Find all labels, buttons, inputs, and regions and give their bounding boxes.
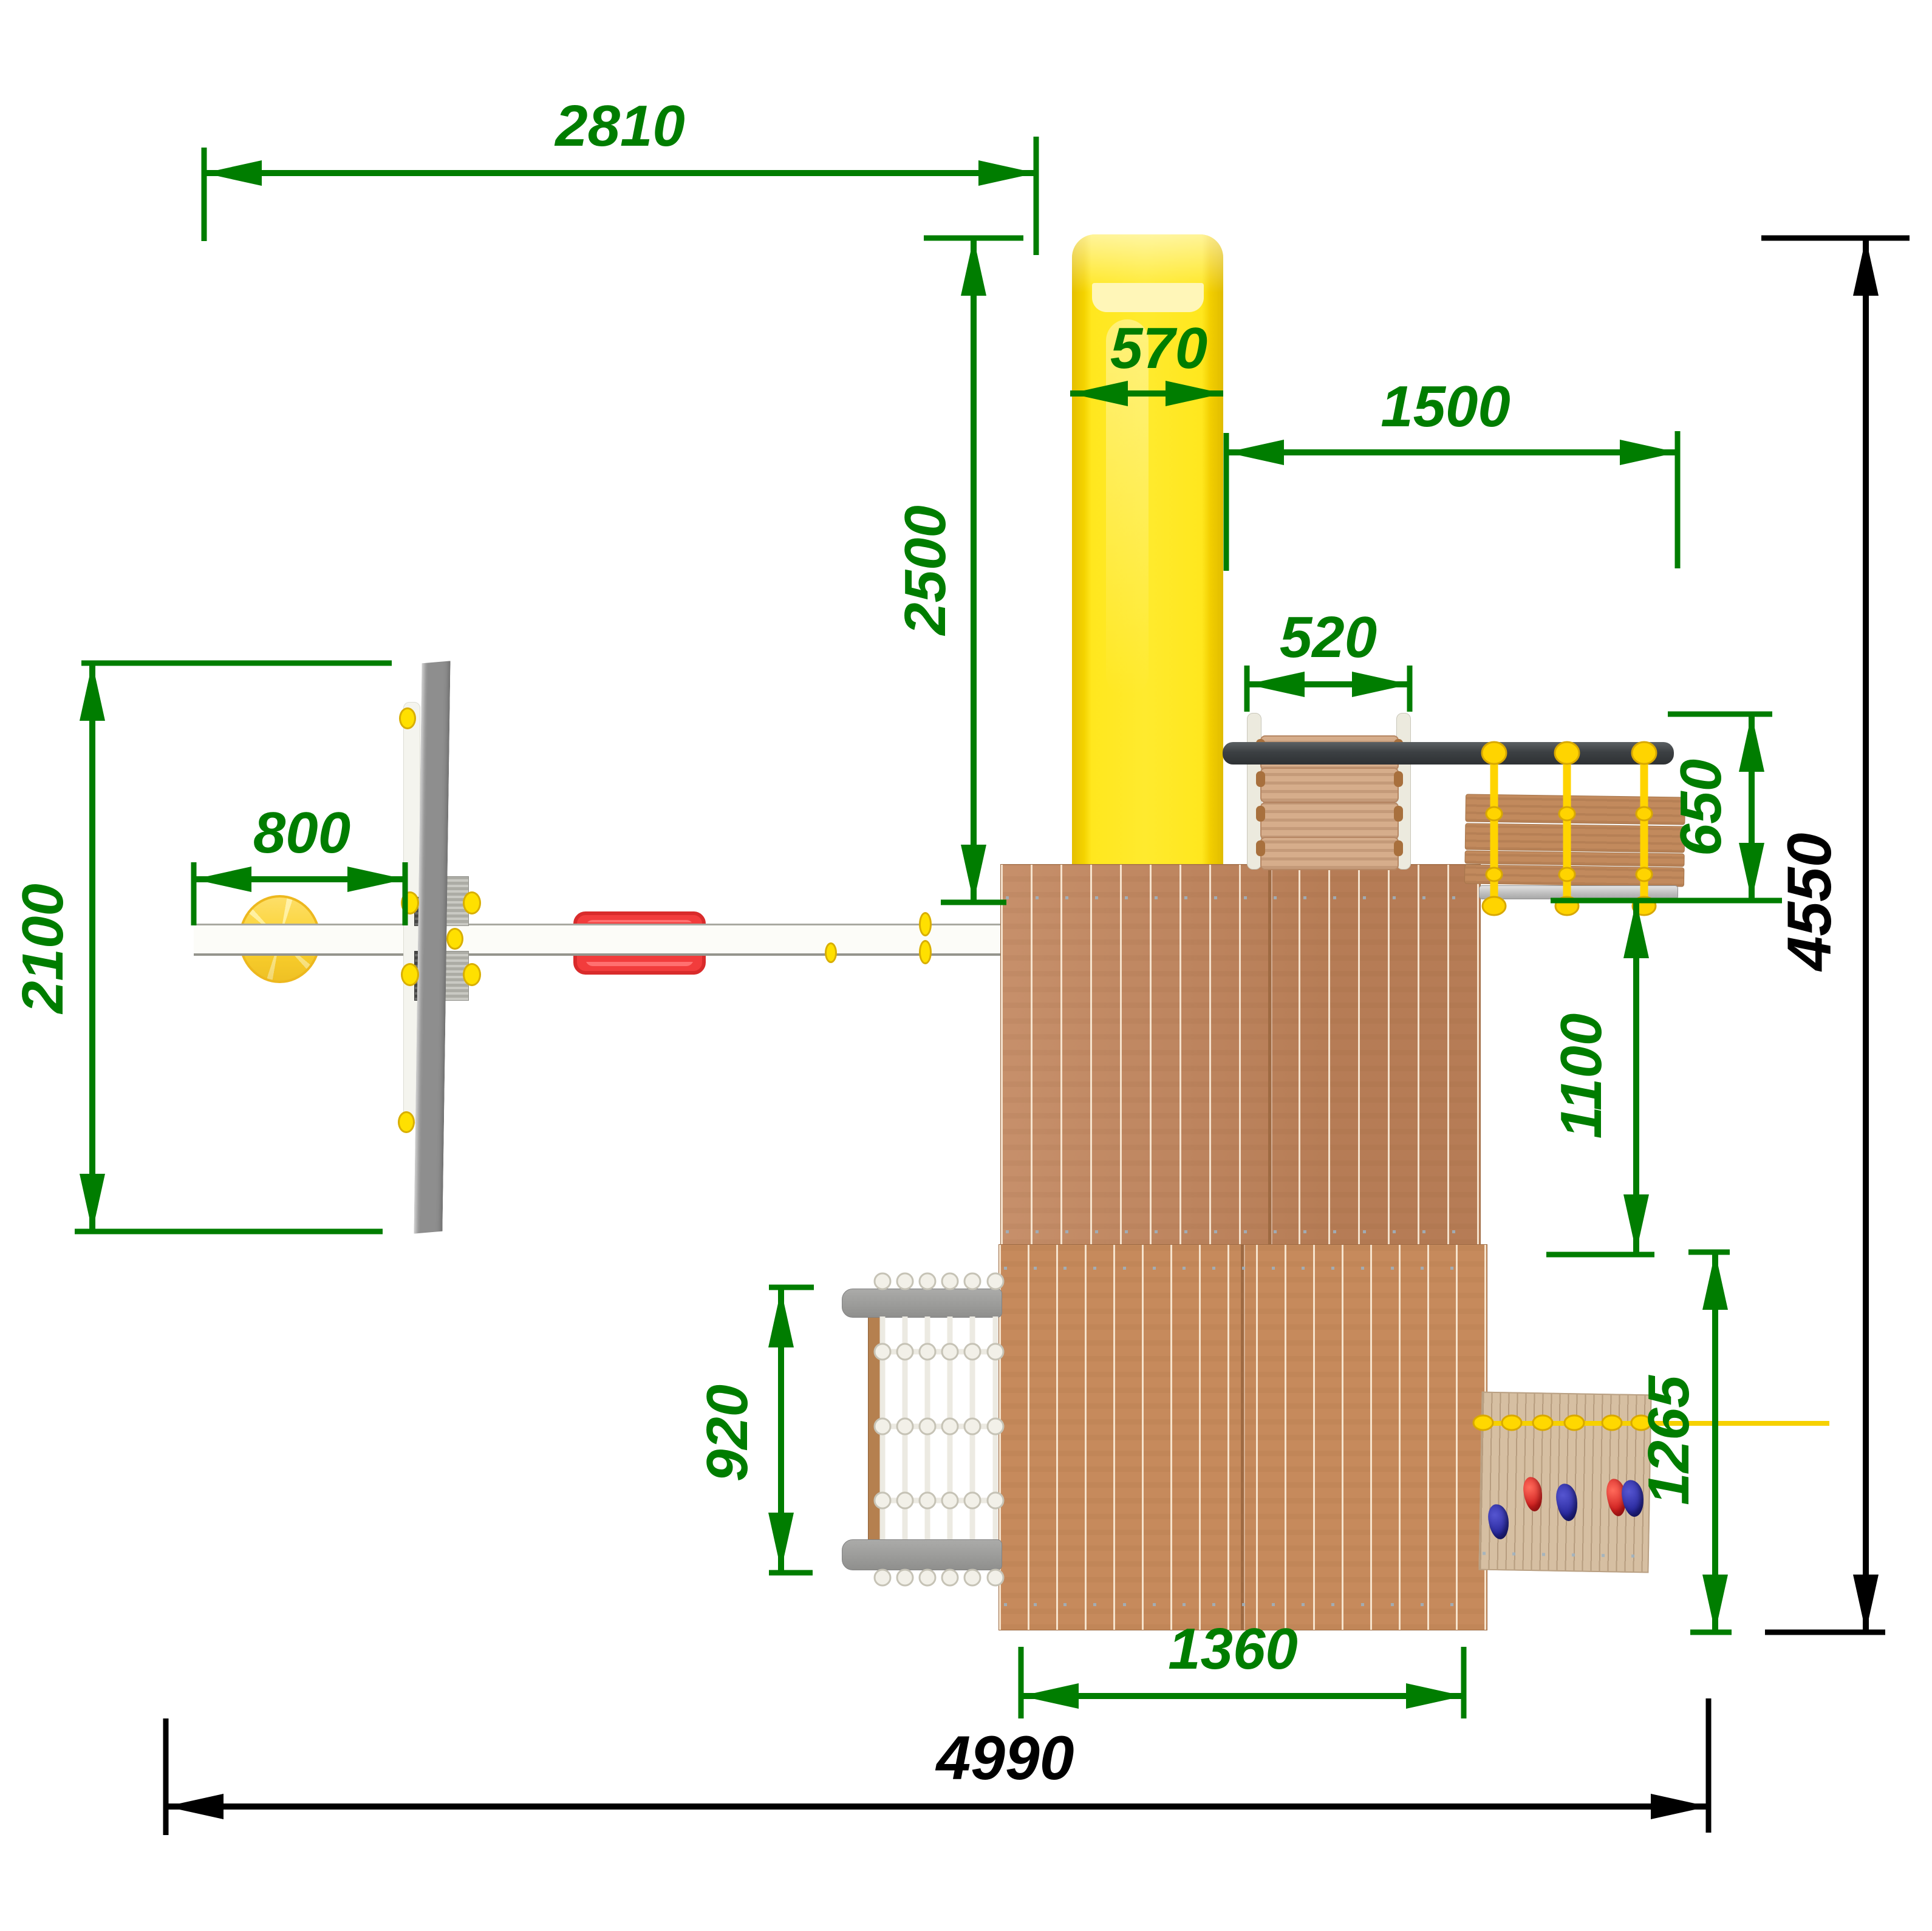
dim-label-2100: 2100 [10, 884, 75, 1015]
dim-label-920: 920 [695, 1384, 760, 1482]
dim-label-520: 520 [1280, 605, 1377, 670]
dimension-650 [1551, 714, 1782, 901]
dimension-2100 [75, 663, 392, 1231]
dimension-520 [1247, 666, 1410, 712]
bridge-ropes [1482, 742, 1656, 915]
dimension-570 [1070, 381, 1223, 406]
dim-label-4990: 4990 [935, 1723, 1074, 1793]
dim-label-650: 650 [1668, 759, 1733, 856]
dim-label-2810: 2810 [554, 94, 685, 158]
dim-label-2500: 2500 [893, 505, 958, 636]
dim-label-1265: 1265 [1636, 1375, 1701, 1505]
dim-label-4550: 4550 [1775, 833, 1844, 972]
dimension-920 [768, 1287, 814, 1573]
dim-label-800: 800 [253, 800, 350, 865]
dim-label-1360: 1360 [1168, 1616, 1298, 1681]
dimension-800 [194, 862, 405, 925]
net-knots [875, 1273, 1003, 1585]
dimension-overlay: 2810 2500 570 1500 520 650 1100 1265 920… [0, 0, 1932, 1931]
dim-label-1100: 1100 [1549, 1013, 1614, 1139]
net-ropes [875, 1316, 1002, 1539]
dimension-1500 [1226, 431, 1678, 571]
drawing-canvas: 2810 2500 570 1500 520 650 1100 1265 920… [0, 0, 1932, 1931]
dim-label-570: 570 [1110, 316, 1207, 381]
dim-label-1500: 1500 [1381, 374, 1510, 439]
